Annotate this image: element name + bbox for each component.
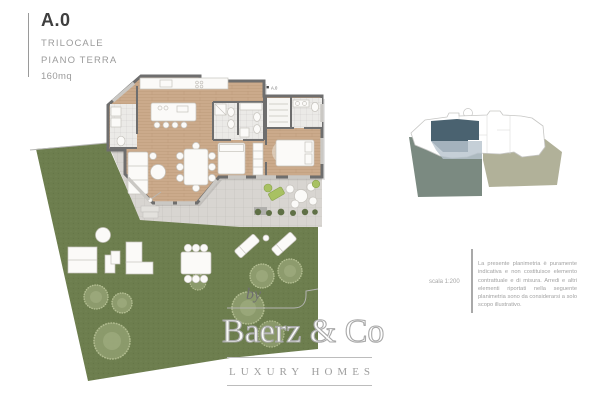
- plant: [312, 180, 320, 188]
- logo-tagline: LUXURY HOMES: [229, 366, 375, 378]
- side-table: [150, 153, 157, 160]
- logo-by: by: [246, 286, 261, 304]
- site-plan-inset: [409, 109, 562, 198]
- kitchen-island: [151, 103, 196, 121]
- outdoor-dining-set: [181, 244, 211, 283]
- logo-brand: Baerz & Co: [222, 313, 378, 351]
- logo-tagline-box: LUXURY HOMES: [227, 357, 372, 386]
- notes-divider: [471, 249, 473, 313]
- garden-rock: [96, 228, 111, 243]
- scale-note: scala 1:200: [429, 279, 460, 285]
- plan-unit-label: A.0: [267, 85, 278, 90]
- disclaimer-text: La presente planimetria è puramente indi…: [478, 260, 577, 310]
- plant: [264, 184, 272, 192]
- bedroom-1: [218, 143, 263, 175]
- armchair: [151, 165, 166, 180]
- terrace-steps: [141, 206, 159, 218]
- dining-table: [184, 149, 208, 185]
- wardrobe-room: [266, 98, 291, 128]
- svg-text:A.0: A.0: [271, 85, 278, 90]
- sink: [160, 80, 172, 87]
